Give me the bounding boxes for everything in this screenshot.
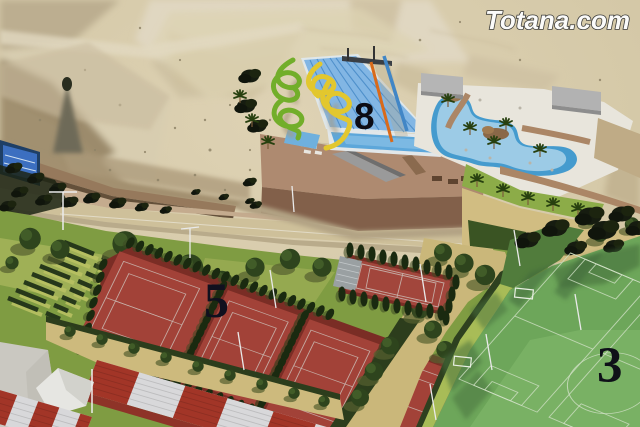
svg-text:3: 3: [597, 338, 623, 394]
svg-text:5: 5: [204, 272, 229, 328]
svg-text:8: 8: [354, 96, 375, 137]
svg-text:Totana.com: Totana.com: [485, 5, 630, 35]
